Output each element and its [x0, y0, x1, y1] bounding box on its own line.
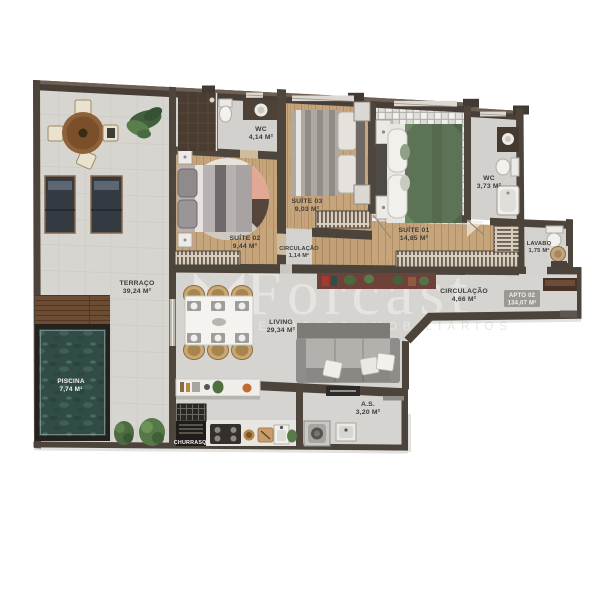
- svg-text:14,85 M²: 14,85 M²: [400, 235, 429, 242]
- svg-text:1,75 M²: 1,75 M²: [528, 247, 549, 254]
- svg-text:LAVABO: LAVABO: [527, 241, 552, 247]
- svg-text:TERRAÇO: TERRAÇO: [119, 280, 154, 287]
- svg-text:3,20 M²: 3,20 M²: [356, 409, 381, 416]
- svg-text:134,07 M²: 134,07 M²: [508, 300, 537, 307]
- svg-text:1,14 M²: 1,14 M²: [289, 252, 309, 259]
- svg-text:9,03 M²: 9,03 M²: [295, 206, 320, 213]
- svg-text:9,44 M²: 9,44 M²: [233, 243, 258, 250]
- svg-text:WC: WC: [483, 175, 495, 182]
- svg-text:SUÍTE 03: SUÍTE 03: [291, 196, 322, 205]
- svg-text:SUÍTE 02: SUÍTE 02: [229, 233, 260, 242]
- svg-text:PISCINA: PISCINA: [57, 378, 85, 385]
- svg-text:29,34 M²: 29,34 M²: [267, 327, 296, 334]
- svg-text:WC: WC: [255, 126, 267, 133]
- svg-text:CHURRASQ.: CHURRASQ.: [174, 440, 209, 446]
- svg-text:39,24 M²: 39,24 M²: [123, 288, 152, 295]
- svg-text:A.S.: A.S.: [361, 401, 375, 408]
- svg-text:APTO 02: APTO 02: [509, 293, 536, 299]
- svg-text:3,73 M²: 3,73 M²: [477, 183, 502, 190]
- svg-text:SUÍTE 01: SUÍTE 01: [398, 225, 429, 234]
- svg-text:LIVING: LIVING: [269, 319, 293, 326]
- svg-text:CIRCULAÇÃO: CIRCULAÇÃO: [440, 286, 488, 295]
- svg-text:CIRCULAÇÃO: CIRCULAÇÃO: [279, 245, 319, 252]
- svg-text:4,14 M²: 4,14 M²: [249, 134, 274, 141]
- svg-text:7,74 M²: 7,74 M²: [59, 386, 82, 393]
- svg-text:4,66 M²: 4,66 M²: [452, 296, 477, 303]
